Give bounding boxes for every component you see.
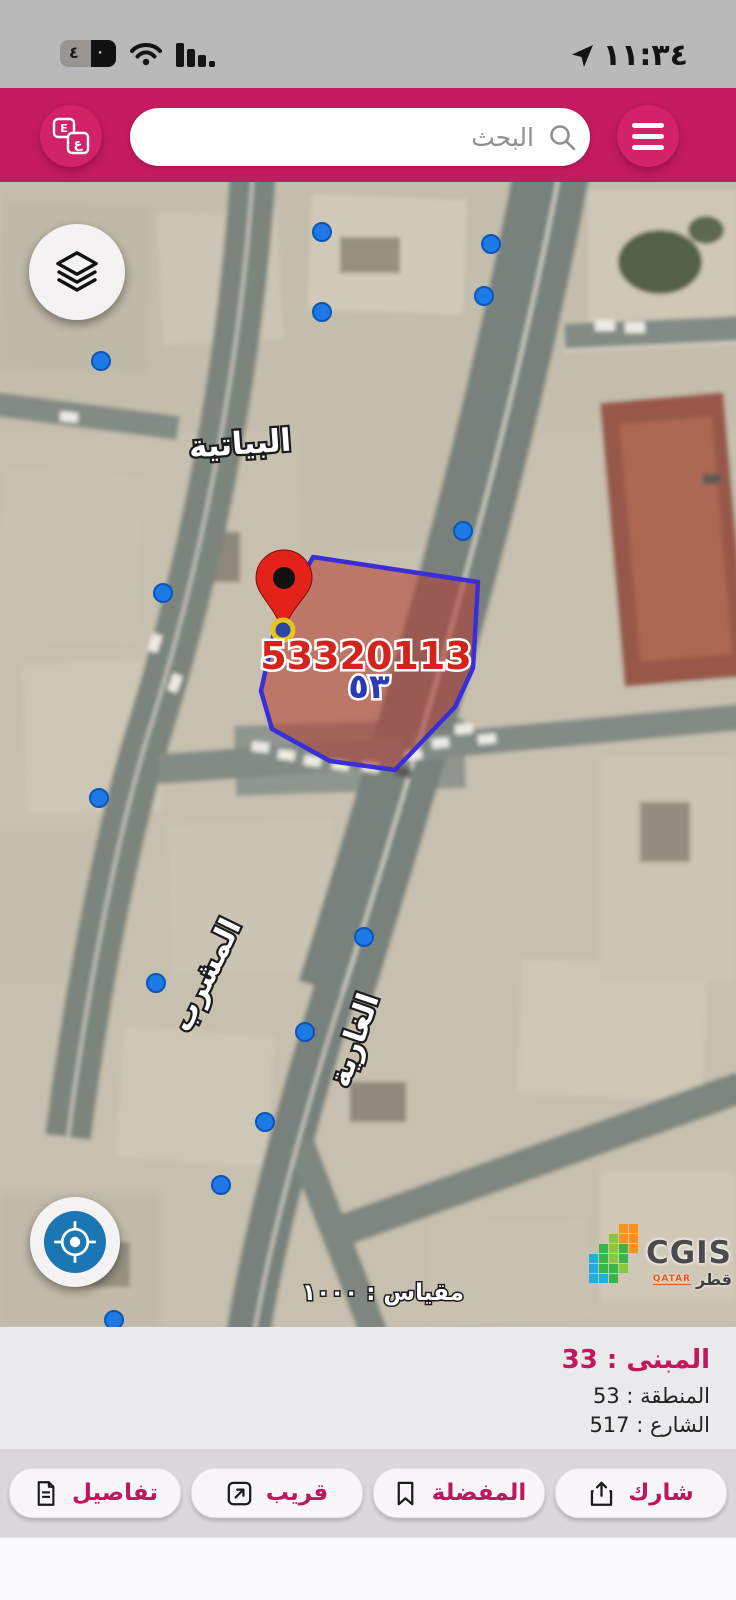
details-button-label: تفاصيل bbox=[72, 1480, 158, 1506]
map-marker[interactable] bbox=[105, 1311, 123, 1327]
nearby-button[interactable]: قريب bbox=[191, 1468, 363, 1518]
nearby-button-label: قريب bbox=[266, 1480, 328, 1506]
svg-text:ع: ع bbox=[74, 137, 84, 152]
map-marker[interactable] bbox=[154, 584, 172, 602]
layers-button[interactable] bbox=[29, 224, 125, 320]
svg-text:E: E bbox=[60, 122, 68, 135]
share-icon bbox=[588, 1480, 615, 1507]
menu-bar bbox=[632, 123, 664, 128]
cellular-signal-icon bbox=[176, 41, 218, 67]
location-arrow-icon bbox=[569, 43, 595, 69]
search-bar bbox=[130, 108, 590, 166]
hamburger-menu-button[interactable] bbox=[617, 105, 679, 167]
menu-bar bbox=[632, 145, 664, 150]
map-marker[interactable] bbox=[355, 928, 373, 946]
map-scale-text: مقياس : ١٠٠٠ bbox=[302, 1280, 464, 1306]
qatar-ar-text: قطر bbox=[696, 1272, 732, 1288]
satellite-map[interactable]: البياتية المشرب الغارية مقياس : ١٠٠٠ 533… bbox=[0, 182, 736, 1327]
zone-number-line: المنطقة : 53 bbox=[0, 1384, 710, 1408]
map-marker[interactable] bbox=[475, 287, 493, 305]
street-label-albayatiyah: البياتية bbox=[188, 422, 293, 465]
favorites-button[interactable]: المفضلة bbox=[373, 1468, 545, 1518]
status-left-cluster: ٤ ٠ bbox=[60, 40, 218, 67]
clock-time: ١١:٣٤ bbox=[603, 38, 688, 73]
app-header: E ع bbox=[0, 88, 736, 182]
app-screen: ٤ ٠ bbox=[0, 0, 736, 1600]
zone-number-label: ٥٣ bbox=[348, 667, 390, 707]
search-input[interactable] bbox=[130, 108, 590, 166]
my-location-button[interactable] bbox=[30, 1197, 120, 1287]
external-arrow-icon bbox=[226, 1480, 253, 1507]
map-marker[interactable] bbox=[313, 223, 331, 241]
map-marker[interactable] bbox=[256, 1113, 274, 1131]
wifi-icon bbox=[129, 41, 163, 66]
battery-percent-tens: ٤ bbox=[69, 43, 79, 62]
map-marker[interactable] bbox=[454, 522, 472, 540]
share-button[interactable]: شارك bbox=[555, 1468, 727, 1518]
battery-icon: ٤ ٠ bbox=[60, 40, 116, 67]
map-marker[interactable] bbox=[90, 789, 108, 807]
menu-bar bbox=[632, 134, 664, 139]
target-icon bbox=[44, 1211, 106, 1273]
building-number-line: المبنى : 33 bbox=[0, 1345, 710, 1375]
favorites-button-label: المفضلة bbox=[432, 1480, 527, 1506]
bottom-safe-area bbox=[0, 1537, 736, 1600]
qatar-en-text: QATAR bbox=[653, 1275, 691, 1285]
battery-percent-ones: ٠ bbox=[96, 45, 104, 60]
share-button-label: شارك bbox=[628, 1480, 694, 1506]
map-marker[interactable] bbox=[147, 974, 165, 992]
street-number-line: الشارع : 517 bbox=[0, 1413, 710, 1437]
map-marker[interactable] bbox=[482, 235, 500, 253]
bookmark-icon bbox=[392, 1480, 419, 1507]
cgis-mosaic-icon bbox=[588, 1224, 640, 1288]
details-button[interactable]: تفاصيل bbox=[9, 1468, 181, 1518]
map-marker[interactable] bbox=[212, 1176, 230, 1194]
layers-icon bbox=[50, 245, 104, 299]
map-marker[interactable] bbox=[313, 303, 331, 321]
status-bar: ٤ ٠ bbox=[0, 0, 736, 88]
action-bar: تفاصيل قريب المفضلة شارك bbox=[0, 1449, 736, 1537]
map-marker[interactable] bbox=[92, 352, 110, 370]
translate-icon: E ع bbox=[50, 115, 92, 157]
language-toggle-button[interactable]: E ع bbox=[40, 105, 102, 167]
search-icon bbox=[548, 123, 576, 151]
cgis-logo-text: CGIS bbox=[646, 1238, 732, 1269]
status-right-cluster: ١١:٣٤ bbox=[569, 38, 688, 73]
parcel-info-panel: المبنى : 33 المنطقة : 53 الشارع : 517 bbox=[0, 1327, 736, 1449]
map-marker[interactable] bbox=[296, 1023, 314, 1041]
cgis-qatar-logo: CGIS QATAR قطر bbox=[588, 1224, 732, 1288]
document-icon bbox=[32, 1480, 59, 1507]
